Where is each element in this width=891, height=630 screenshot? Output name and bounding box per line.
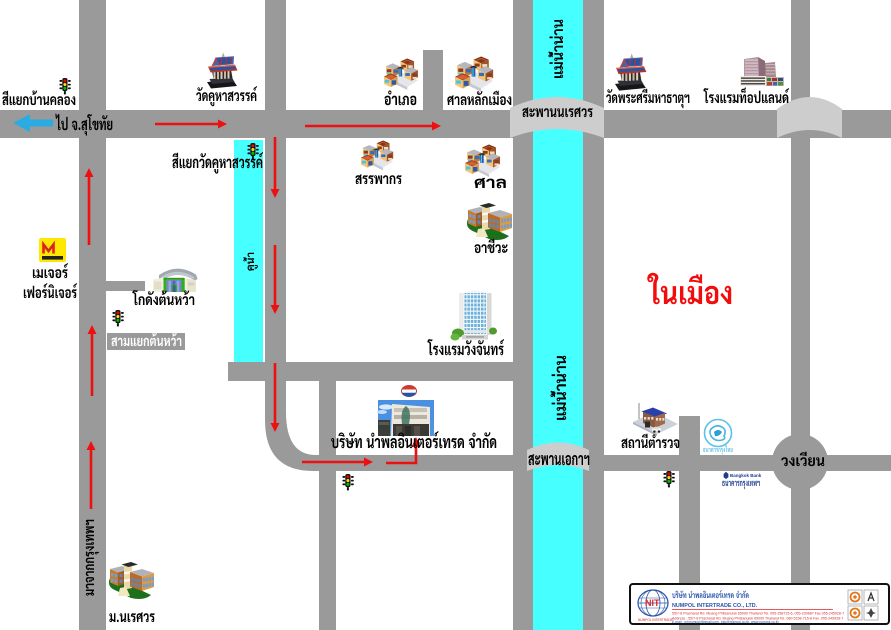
svg-text:NUMPOL INTERTRADE: NUMPOL INTERTRADE (638, 618, 673, 622)
svg-text:E-mail : mknumpol@gmail.com, i: E-mail : mknumpol@gmail.com, info@numpol… (672, 620, 779, 624)
svg-text:Bangkok Bank: Bangkok Bank (730, 473, 762, 478)
svg-text:NUMPOL INTERTRADE CO., LTD.: NUMPOL INTERTRADE CO., LTD. (672, 603, 758, 609)
svg-text:NIT: NIT (645, 598, 660, 608)
svg-text:55/7-8 Pracharat Rd. Muang Phi: 55/7-8 Pracharat Rd. Muang Phitsanulok 6… (672, 612, 844, 616)
